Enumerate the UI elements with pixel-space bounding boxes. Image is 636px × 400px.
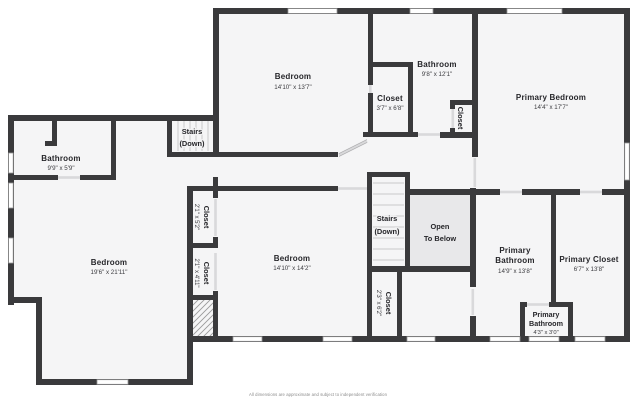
dims-closet-mid-low: 2'3" x 6'2": [375, 290, 381, 316]
chimney-hatch: [192, 300, 213, 336]
label-bedroom-mid: Bedroom: [274, 254, 311, 263]
dims-primary-bathroom: 14'9" x 13'8": [498, 268, 532, 275]
label-bathroom-left: Bathroom: [41, 154, 80, 163]
label-closet-upper-small: Closet: [456, 107, 465, 130]
dims-primary-closet: 6'7" x 13'8": [574, 266, 605, 273]
floor-plan-drawing: Bedroom 14'10" x 13'7" Bathroom 9'8" x 1…: [0, 0, 636, 400]
dims-bedroom-mid: 14'10" x 14'2": [273, 265, 310, 272]
label-stairs-mid-1: Stairs: [377, 214, 398, 223]
label-closet-hall-a: Closet: [202, 206, 211, 229]
dims-bathroom-top: 9'8" x 12'1": [422, 71, 453, 78]
label-primary-bedroom: Primary Bedroom: [516, 93, 586, 102]
label-stairs-upper-1: Stairs: [182, 127, 203, 136]
label-primary-bath-small-2: Bathroom: [529, 319, 563, 328]
dims-closet-hall-b: 2'1" x 4'11": [193, 258, 199, 287]
footer-disclaimer: All dimensions are approximate and subje…: [249, 392, 388, 397]
label-primary-bath-small-1: Primary: [533, 310, 560, 319]
label-stairs-mid-2: (Down): [374, 227, 400, 236]
label-primary-closet: Primary Closet: [559, 255, 618, 264]
dims-primary-bath-small: 4'3" x 3'0": [533, 330, 558, 336]
dims-bedroom-top: 14'10" x 13'7": [274, 84, 311, 91]
dims-primary-bedroom: 14'4" x 17'7": [534, 104, 568, 111]
dims-closet-top: 3'7" x 6'8": [376, 105, 403, 112]
dims-bathroom-left: 9'9" x 5'9": [47, 165, 74, 172]
label-primary-bathroom-1: Primary: [499, 246, 531, 255]
label-bedroom-top: Bedroom: [275, 72, 312, 81]
dims-bedroom-left: 19'6" x 21'11": [91, 269, 128, 276]
label-bedroom-left: Bedroom: [91, 258, 128, 267]
dims-closet-hall-a: 2'1" x 5'2": [193, 204, 199, 230]
floor-plan-page: Bedroom 14'10" x 13'7" Bathroom 9'8" x 1…: [0, 0, 636, 400]
label-closet-top: Closet: [377, 94, 403, 103]
label-open-to-below-2: To Below: [424, 234, 457, 243]
label-closet-hall-b: Closet: [202, 262, 211, 285]
label-closet-mid-low: Closet: [384, 292, 393, 315]
label-primary-bathroom-2: Bathroom: [495, 256, 534, 265]
label-open-to-below-1: Open: [431, 222, 450, 231]
label-stairs-upper-2: (Down): [179, 139, 205, 148]
label-bathroom-top: Bathroom: [417, 60, 456, 69]
